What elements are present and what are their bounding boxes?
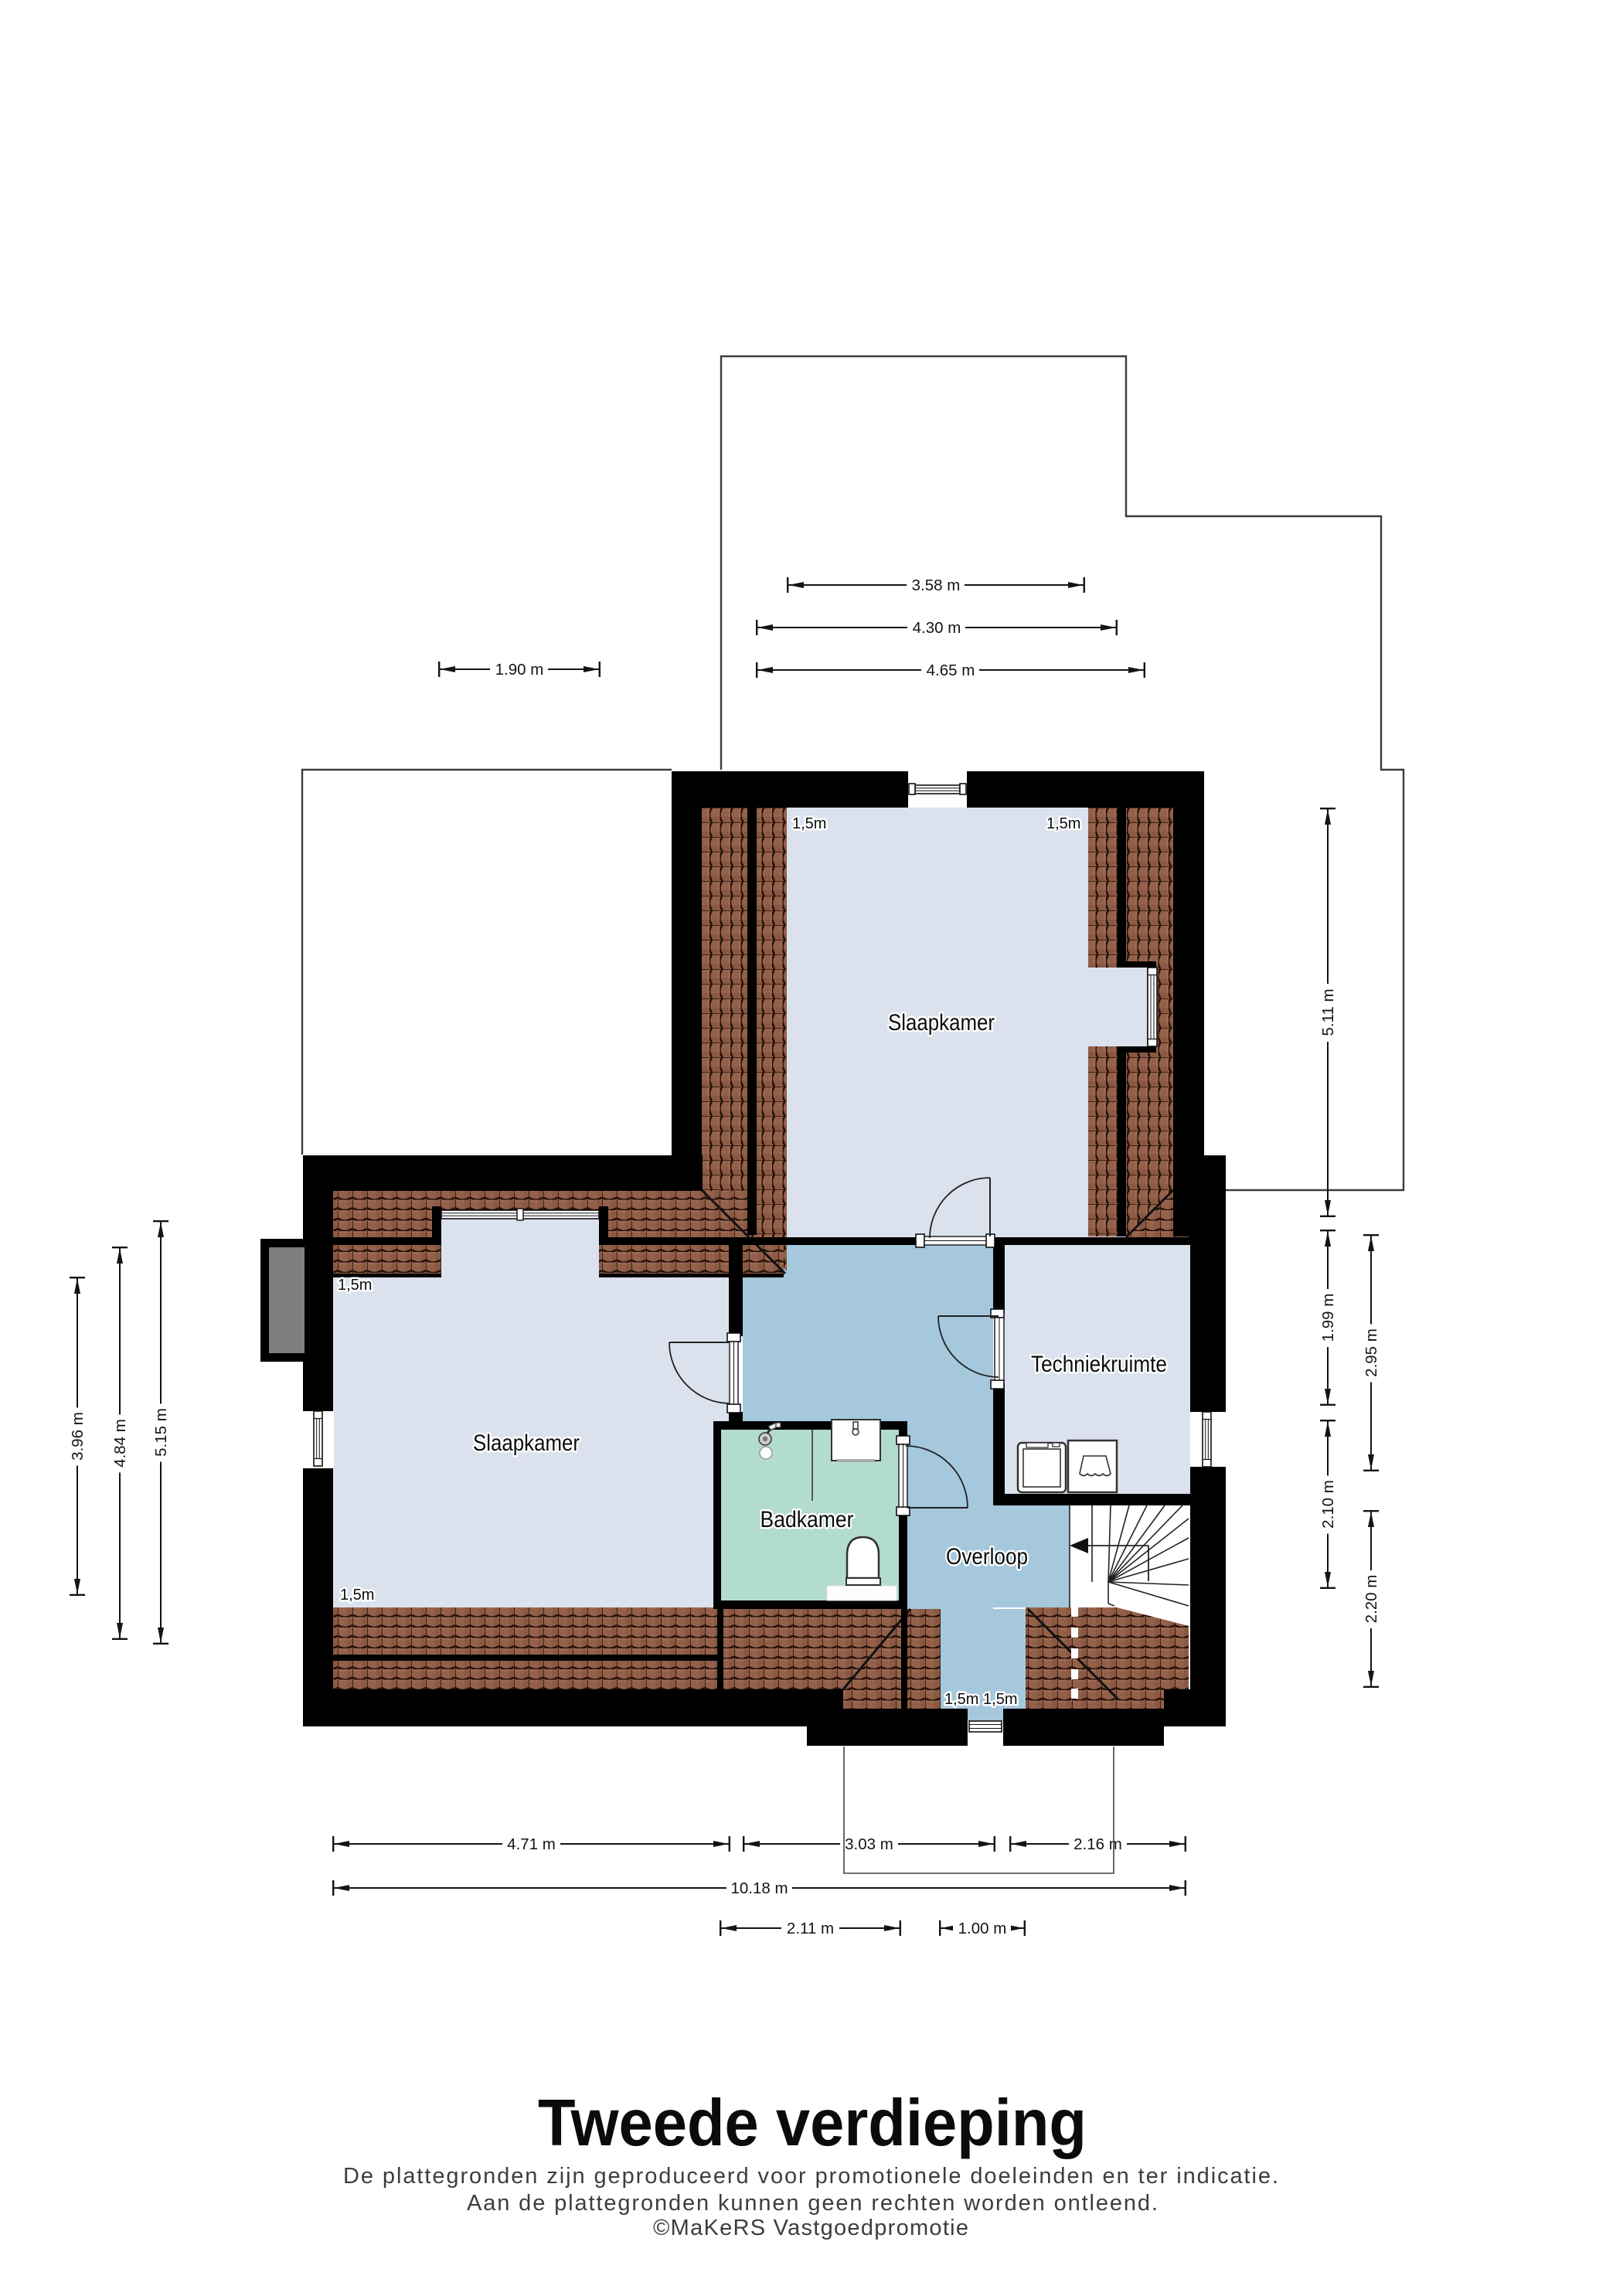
svg-text:5.11 m: 5.11 m bbox=[1319, 988, 1337, 1036]
svg-text:1.99 m: 1.99 m bbox=[1319, 1294, 1337, 1342]
svg-text:3.96 m: 3.96 m bbox=[69, 1412, 87, 1461]
svg-text:Badkamer: Badkamer bbox=[760, 1507, 854, 1532]
svg-text:Techniekruimte: Techniekruimte bbox=[1031, 1352, 1167, 1377]
svg-text:Tweede verdieping: Tweede verdieping bbox=[538, 2087, 1087, 2160]
svg-text:1.00 m: 1.00 m bbox=[958, 1920, 1007, 1937]
svg-text:Aan de plattegronden kunnen ge: Aan de plattegronden kunnen geen rechten… bbox=[467, 2191, 1158, 2216]
svg-text:4.84 m: 4.84 m bbox=[111, 1419, 129, 1468]
svg-text:5.15 m: 5.15 m bbox=[152, 1408, 170, 1457]
svg-text:10.18 m: 10.18 m bbox=[730, 1879, 788, 1897]
svg-text:1,5m: 1,5m bbox=[1046, 815, 1080, 832]
svg-text:2.16 m: 2.16 m bbox=[1073, 1835, 1122, 1853]
svg-text:3.58 m: 3.58 m bbox=[912, 577, 961, 594]
svg-text:1,5m: 1,5m bbox=[340, 1587, 374, 1604]
svg-text:2.20 m: 2.20 m bbox=[1363, 1575, 1380, 1624]
svg-text:4.65 m: 4.65 m bbox=[927, 662, 975, 679]
svg-text:De plattegronden zijn geproduc: De plattegronden zijn geproduceerd voor … bbox=[343, 2164, 1278, 2189]
svg-text:Slaapkamer: Slaapkamer bbox=[473, 1430, 580, 1456]
svg-text:2.10 m: 2.10 m bbox=[1319, 1480, 1337, 1529]
svg-text:1.90 m: 1.90 m bbox=[495, 661, 544, 679]
svg-text:1,5m: 1,5m bbox=[792, 815, 826, 832]
svg-text:Slaapkamer: Slaapkamer bbox=[888, 1010, 995, 1036]
svg-text:2.95 m: 2.95 m bbox=[1363, 1328, 1380, 1377]
svg-text:3.03 m: 3.03 m bbox=[845, 1835, 893, 1853]
svg-text:4.71 m: 4.71 m bbox=[507, 1835, 556, 1853]
svg-text:1,5m 1,5m: 1,5m 1,5m bbox=[944, 1691, 1017, 1708]
svg-text:1,5m: 1,5m bbox=[338, 1277, 372, 1294]
svg-text:Overloop: Overloop bbox=[946, 1544, 1028, 1570]
svg-text:2.11 m: 2.11 m bbox=[787, 1920, 834, 1937]
svg-text:4.30 m: 4.30 m bbox=[913, 619, 961, 637]
svg-text:©MaKeRS Vastgoedpromotie: ©MaKeRS Vastgoedpromotie bbox=[653, 2216, 968, 2240]
